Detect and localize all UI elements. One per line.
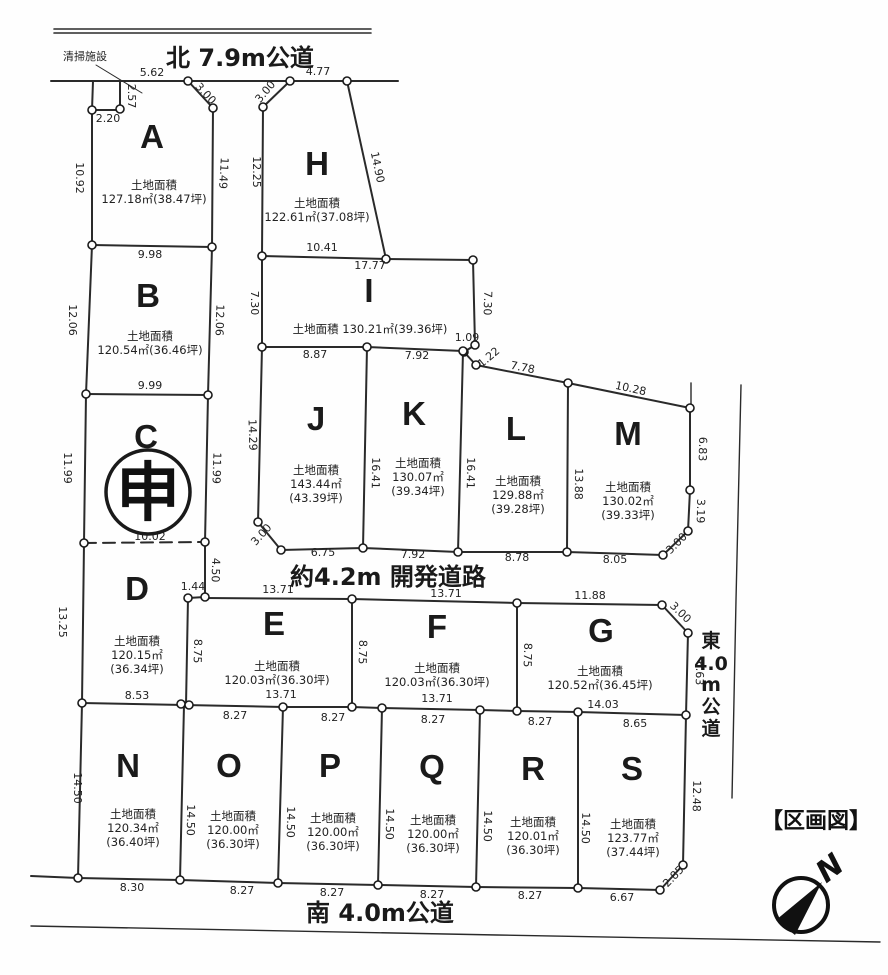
survey-marker: [74, 874, 82, 882]
survey-marker: [204, 391, 212, 399]
survey-marker: [348, 703, 356, 711]
plot-area-text: (36.30坪): [206, 837, 259, 851]
plot-letter-d: D: [125, 570, 149, 607]
dimension-label: 8.53: [125, 689, 150, 702]
dimension-label: 14.90: [368, 151, 387, 185]
survey-marker: [574, 708, 582, 716]
east-road-line: [732, 385, 741, 798]
lm-divider: [567, 383, 568, 552]
dimension-label: 13.71: [265, 688, 297, 701]
dimension-label: 8.27: [223, 709, 248, 722]
plot-area-text: 土地面積: [294, 196, 340, 210]
survey-marker: [574, 884, 582, 892]
plot-area-text: (39.28坪): [491, 502, 544, 516]
dimension-label: 10.41: [306, 241, 338, 254]
dimension-label: 1.44: [181, 580, 206, 593]
plot-area-text: (43.39坪): [289, 491, 342, 505]
dimension-label: 3.00: [192, 80, 218, 107]
lm-top-edge: [476, 365, 690, 408]
plot-b-bottom: [86, 394, 208, 395]
survey-marker: [201, 538, 209, 546]
survey-marker: [208, 243, 216, 251]
survey-marker: [184, 77, 192, 85]
survey-marker: [684, 629, 692, 637]
plot-c-mark: 申: [106, 450, 190, 534]
dimension-label: 8.05: [603, 553, 628, 566]
south-road-line: [31, 926, 880, 942]
plot-area-text: 120.54㎡(36.46坪): [97, 343, 202, 357]
plot-letter-k: K: [402, 395, 426, 432]
plot-area-text: 120.34㎡: [107, 821, 159, 835]
dimension-label: 11.49: [216, 157, 231, 189]
jk-divider: [363, 347, 367, 548]
dimension-label: 11.99: [209, 452, 223, 484]
dimension-label: 3.00: [252, 78, 278, 105]
dimension-label: 6.75: [311, 546, 336, 559]
survey-marker: [682, 711, 690, 719]
survey-marker: [177, 700, 185, 708]
plot-area-text: 143.44㎡: [290, 477, 342, 491]
survey-marker: [684, 527, 692, 535]
plot-letter-s: S: [621, 750, 643, 787]
plot-area-text: 土地面積 130.21㎡(39.36坪): [293, 322, 448, 336]
plot-area-text: 120.01㎡: [507, 829, 559, 843]
dimension-label: 8.78: [505, 551, 530, 564]
east-road-label-char: 東: [701, 629, 720, 652]
plot-letter-n: N: [116, 747, 140, 784]
plot-area-text: 土地面積: [577, 664, 623, 678]
survey-marker: [659, 551, 667, 559]
dimension-label: 8.27: [518, 889, 543, 902]
dimension-label: 16.41: [369, 457, 383, 489]
plot-area-text: 120.15㎡: [111, 648, 163, 662]
dimension-label: 14.50: [481, 810, 495, 842]
dev-road-label: 約4.2m 開発道路: [290, 563, 487, 591]
plot-area-text: 土地面積: [410, 813, 456, 827]
survey-marker: [513, 599, 521, 607]
plot-area-text: (36.30坪): [406, 841, 459, 855]
survey-marker: [185, 701, 193, 709]
dimension-label: 14.50: [284, 806, 298, 838]
plot-letter-e: E: [263, 605, 285, 642]
dimension-label: 13.71: [262, 583, 294, 596]
survey-marker: [469, 256, 477, 264]
plot-area-text: (36.30坪): [306, 839, 359, 853]
plot-area-text: (36.30坪): [506, 843, 559, 857]
dimension-label: 9.98: [138, 248, 163, 261]
dimension-label: 2.57: [125, 84, 138, 109]
dimension-label: 8.75: [521, 643, 535, 668]
dimension-label: 3.19: [694, 499, 707, 524]
survey-marker: [656, 886, 664, 894]
dimension-label: 8.27: [320, 886, 345, 899]
plot-letter-j: J: [307, 400, 325, 437]
survey-marker: [563, 548, 571, 556]
op-divider: [278, 707, 283, 883]
east-road-label-char: 公: [701, 696, 720, 718]
dimension-label: 8.65: [623, 717, 648, 730]
east-road-label-char: m: [701, 674, 721, 696]
survey-marker: [80, 539, 88, 547]
survey-marker: [564, 379, 572, 387]
survey-marker: [348, 595, 356, 603]
survey-marker: [476, 706, 484, 714]
plot-area-text: (36.34坪): [110, 662, 163, 676]
south-road-label: 南 4.0m公道: [306, 899, 454, 927]
dimension-label: 14.50: [71, 772, 84, 804]
plot-area-text: 120.00㎡: [407, 827, 459, 841]
south-boundary: [31, 715, 686, 890]
survey-marker: [279, 703, 287, 711]
plot-area-text: 土地面積: [114, 634, 160, 648]
survey-marker: [343, 77, 351, 85]
survey-marker: [686, 486, 694, 494]
survey-marker: [454, 548, 462, 556]
plot-area-text: 123.77㎡: [607, 831, 659, 845]
dimension-label: 13.88: [572, 468, 586, 500]
dimension-label: 14.50: [184, 804, 198, 836]
dimension-label: 7.30: [481, 291, 495, 316]
north-road-label: 北 7.9m公道: [166, 44, 314, 72]
plot-area-text: 120.03㎡(36.30坪): [384, 675, 489, 689]
dimension-label: 8.27: [321, 711, 346, 724]
no-divider: [180, 705, 184, 880]
dimension-label: 14.03: [587, 698, 619, 711]
survey-marker: [378, 704, 386, 712]
dimension-label: 12.06: [66, 304, 79, 336]
west-boundary: [78, 110, 92, 878]
plot-area-text: 129.88㎡: [492, 488, 544, 502]
dimension-label: 12.06: [212, 304, 226, 336]
plot-area-text: 土地面積: [605, 480, 651, 494]
plot-area-text: 130.07㎡: [392, 470, 444, 484]
plot-area-text: 土地面積: [131, 178, 177, 192]
survey-marker: [686, 404, 694, 412]
survey-marker: [274, 879, 282, 887]
survey-marker: [277, 546, 285, 554]
survey-marker: [459, 347, 467, 355]
dimension-label: 8.27: [230, 884, 255, 897]
survey-marker: [258, 343, 266, 351]
dimension-label: 8.27: [421, 713, 446, 726]
dimension-label: 1.09: [455, 331, 480, 344]
survey-marker: [88, 241, 96, 249]
land-subdivision-map: 5.623.002.572.2010.9211.499.9812.0612.06…: [0, 0, 888, 975]
plot-area-text: (37.44坪): [606, 845, 659, 859]
plot-area-text: 122.61㎡(37.08坪): [264, 210, 369, 224]
dimension-label: 14.50: [383, 808, 397, 840]
dimension-label: 12.48: [690, 780, 704, 812]
plot-letter-r: R: [521, 750, 545, 787]
kl-divider: [458, 351, 463, 552]
dimension-label: 7.78: [509, 359, 536, 376]
compass: N: [774, 847, 851, 935]
dimension-label: 6.67: [610, 891, 635, 904]
mark-character: 申: [116, 457, 180, 531]
plot-letter-m: M: [614, 415, 642, 452]
dimension-label: 8.75: [356, 640, 370, 665]
plot-letter-l: L: [506, 410, 526, 447]
plot-area-text: 土地面積: [510, 815, 556, 829]
dimension-label: 14.29: [245, 419, 259, 451]
dimension-label: 7.30: [248, 291, 261, 316]
plot-letter-c: C: [134, 418, 158, 455]
plot-area-text: 130.02㎡: [602, 494, 654, 508]
facility-label: 清掃施設: [63, 49, 107, 63]
plot-area-text: 土地面積: [127, 329, 173, 343]
plot-area-text: 土地面積: [310, 811, 356, 825]
dimension-label: 8.75: [191, 639, 205, 664]
plot-letter-p: P: [319, 747, 341, 784]
plot-area-text: 土地面積: [610, 817, 656, 831]
plot-area-text: 土地面積: [254, 659, 300, 673]
dimension-label: 2.20: [96, 112, 121, 125]
plot-letter-q: Q: [419, 748, 445, 785]
survey-marker: [513, 707, 521, 715]
dimension-label: 6.83: [696, 437, 709, 462]
survey-marker: [78, 699, 86, 707]
dimension-label: 4.50: [209, 558, 223, 583]
dimension-label: 8.30: [120, 881, 145, 894]
dimension-label: 13.71: [421, 692, 453, 705]
east-road-label-char: 道: [701, 717, 720, 740]
plot-letter-h: H: [305, 145, 329, 182]
dimension-label: 17.77: [354, 259, 386, 272]
dimension-label: 16.41: [464, 457, 478, 489]
plot-letter-g: G: [588, 612, 614, 649]
qr-divider: [476, 710, 480, 887]
plot-area-text: 土地面積: [414, 661, 460, 675]
east-road-label-char: 4.0: [694, 653, 728, 675]
plot-area-text: (39.34坪): [391, 484, 444, 498]
survey-marker: [658, 601, 666, 609]
plot-area-text: 土地面積: [495, 474, 541, 488]
survey-marker: [82, 390, 90, 398]
plot-letter-o: O: [216, 747, 242, 784]
dimension-label: 11.99: [61, 452, 74, 484]
plot-area-text: 土地面積: [110, 807, 156, 821]
dimension-label: 12.25: [250, 156, 263, 188]
plot-letter-i: I: [364, 272, 373, 309]
facility-notch: [92, 81, 120, 110]
dimension-label: 13.25: [56, 606, 69, 638]
plot-area-text: 土地面積: [395, 456, 441, 470]
plot-area-text: 120.52㎡(36.45坪): [547, 678, 652, 692]
plot-letter-b: B: [136, 277, 160, 314]
dimension-label: 11.88: [574, 589, 606, 602]
dimension-label: 1.22: [475, 344, 502, 370]
survey-marker: [258, 252, 266, 260]
survey-marker: [374, 881, 382, 889]
dimension-label: 5.62: [140, 66, 165, 79]
survey-marker: [286, 77, 294, 85]
dimension-label: 3.00: [667, 599, 694, 625]
dimension-label: 10.92: [73, 162, 86, 194]
survey-marker: [363, 343, 371, 351]
dimension-label: 8.87: [303, 348, 328, 361]
dimension-label: 14.50: [579, 812, 593, 844]
plot-area-text: 120.00㎡: [307, 825, 359, 839]
dimension-label: 9.99: [138, 379, 163, 392]
plot-letter-f: F: [427, 608, 447, 645]
plot-area-text: 127.18㎡(38.47坪): [101, 192, 206, 206]
plot-area-text: 120.00㎡: [207, 823, 259, 837]
north-road-double-line: [54, 29, 371, 33]
plot-area-text: (39.33坪): [601, 508, 654, 522]
dimension-label: 7.92: [401, 548, 426, 561]
plot-area-text: (36.40坪): [106, 835, 159, 849]
plot-a-bottom: [92, 245, 212, 247]
plot-area-text: 土地面積: [293, 463, 339, 477]
dimension-label: 8.27: [528, 715, 553, 728]
plot-letter-a: A: [140, 118, 164, 155]
survey-marker: [472, 883, 480, 891]
pq-divider: [378, 708, 382, 885]
legend-title: 【区画図】: [761, 809, 871, 834]
survey-marker: [201, 593, 209, 601]
dimension-label: 3.00: [248, 521, 274, 548]
dimension-label: 7.92: [405, 349, 430, 362]
survey-marker: [176, 876, 184, 884]
survey-marker: [359, 544, 367, 552]
plot-area-text: 土地面積: [210, 809, 256, 823]
plot-area-text: 120.03㎡(36.30坪): [224, 673, 329, 687]
survey-marker: [184, 594, 192, 602]
